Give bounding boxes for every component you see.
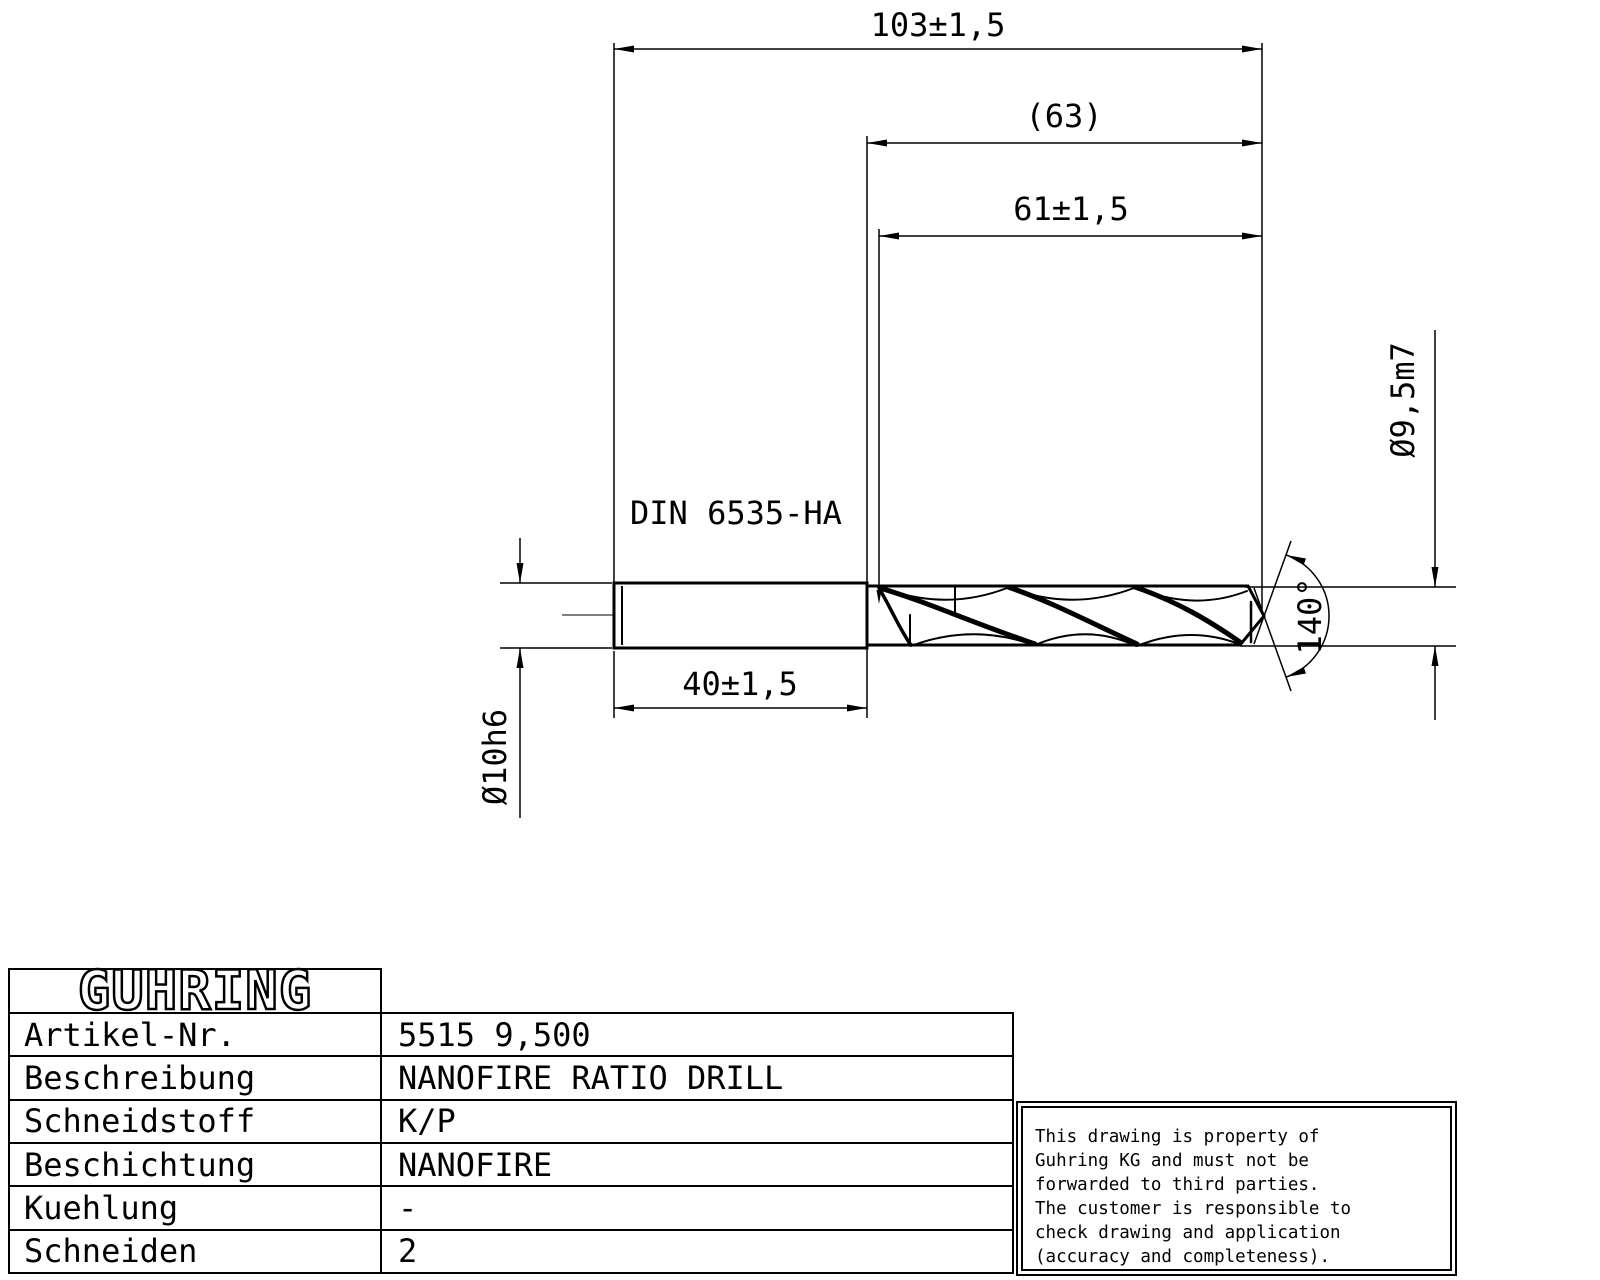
title-block-table: Artikel-Nr. 5515 9,500 Beschreibung NANO… [8, 1012, 1014, 1274]
dim-cutting-diameter-line [1240, 330, 1456, 720]
table-row: Beschreibung NANOFIRE RATIO DRILL [10, 1057, 1012, 1100]
disclaimer-line: This drawing is property of [1035, 1125, 1450, 1149]
disclaimer-box-inner: This drawing is property of Guhring KG a… [1021, 1106, 1452, 1271]
dim-flute-length-label: 61±1,5 [1013, 190, 1129, 228]
dim-shank-diameter-label: Ø10h6 [476, 709, 514, 805]
dim-reference-length-label: (63) [1025, 97, 1102, 135]
row-label: Artikel-Nr. [10, 1014, 382, 1055]
table-row: Artikel-Nr. 5515 9,500 [10, 1014, 1012, 1057]
table-row: Kuehlung - [10, 1187, 1012, 1230]
disclaimer-line: check drawing and application [1035, 1221, 1450, 1245]
disclaimer-line: The customer is responsible to [1035, 1197, 1450, 1221]
row-value: K/P [382, 1101, 1012, 1142]
row-label: Schneidstoff [10, 1101, 382, 1142]
row-label: Beschreibung [10, 1057, 382, 1098]
dimension-lines [500, 43, 1456, 818]
shank-standard-label: DIN 6535-HA [630, 494, 842, 532]
row-value: 2 [382, 1231, 1012, 1272]
dim-point-angle-label: 140° [1291, 577, 1329, 654]
row-label: Kuehlung [10, 1187, 382, 1228]
row-value: NANOFIRE RATIO DRILL [382, 1057, 1012, 1098]
disclaimer-line: forwarded to third parties. [1035, 1173, 1450, 1197]
guhring-logo: GUHRING [78, 964, 313, 1018]
disclaimer-line: Guhring KG and must not be [1035, 1149, 1450, 1173]
table-row: Schneiden 2 [10, 1231, 1012, 1272]
dim-shank-length-label: 40±1,5 [682, 665, 798, 703]
technical-drawing-page: 103±1,5 (63) 61±1,5 40±1,5 DIN 6535-HA Ø… [0, 0, 1600, 1280]
dim-cutting-diameter-label: Ø9,5m7 [1384, 342, 1422, 458]
row-label: Schneiden [10, 1231, 382, 1272]
row-label: Beschichtung [10, 1144, 382, 1185]
table-row: Schneidstoff K/P [10, 1101, 1012, 1144]
dim-shank-diameter-line [500, 538, 612, 818]
row-value: NANOFIRE [382, 1144, 1012, 1185]
shank-outline [614, 583, 867, 648]
disclaimer-box: This drawing is property of Guhring KG a… [1016, 1101, 1457, 1276]
disclaimer-line: (accuracy and completeness). [1035, 1245, 1450, 1269]
dim-overall-length-label: 103±1,5 [871, 6, 1006, 44]
table-row: Beschichtung NANOFIRE [10, 1144, 1012, 1187]
title-block-logo-cell: GUHRING [8, 968, 382, 1014]
row-value: 5515 9,500 [382, 1014, 1012, 1055]
row-value: - [382, 1187, 1012, 1228]
